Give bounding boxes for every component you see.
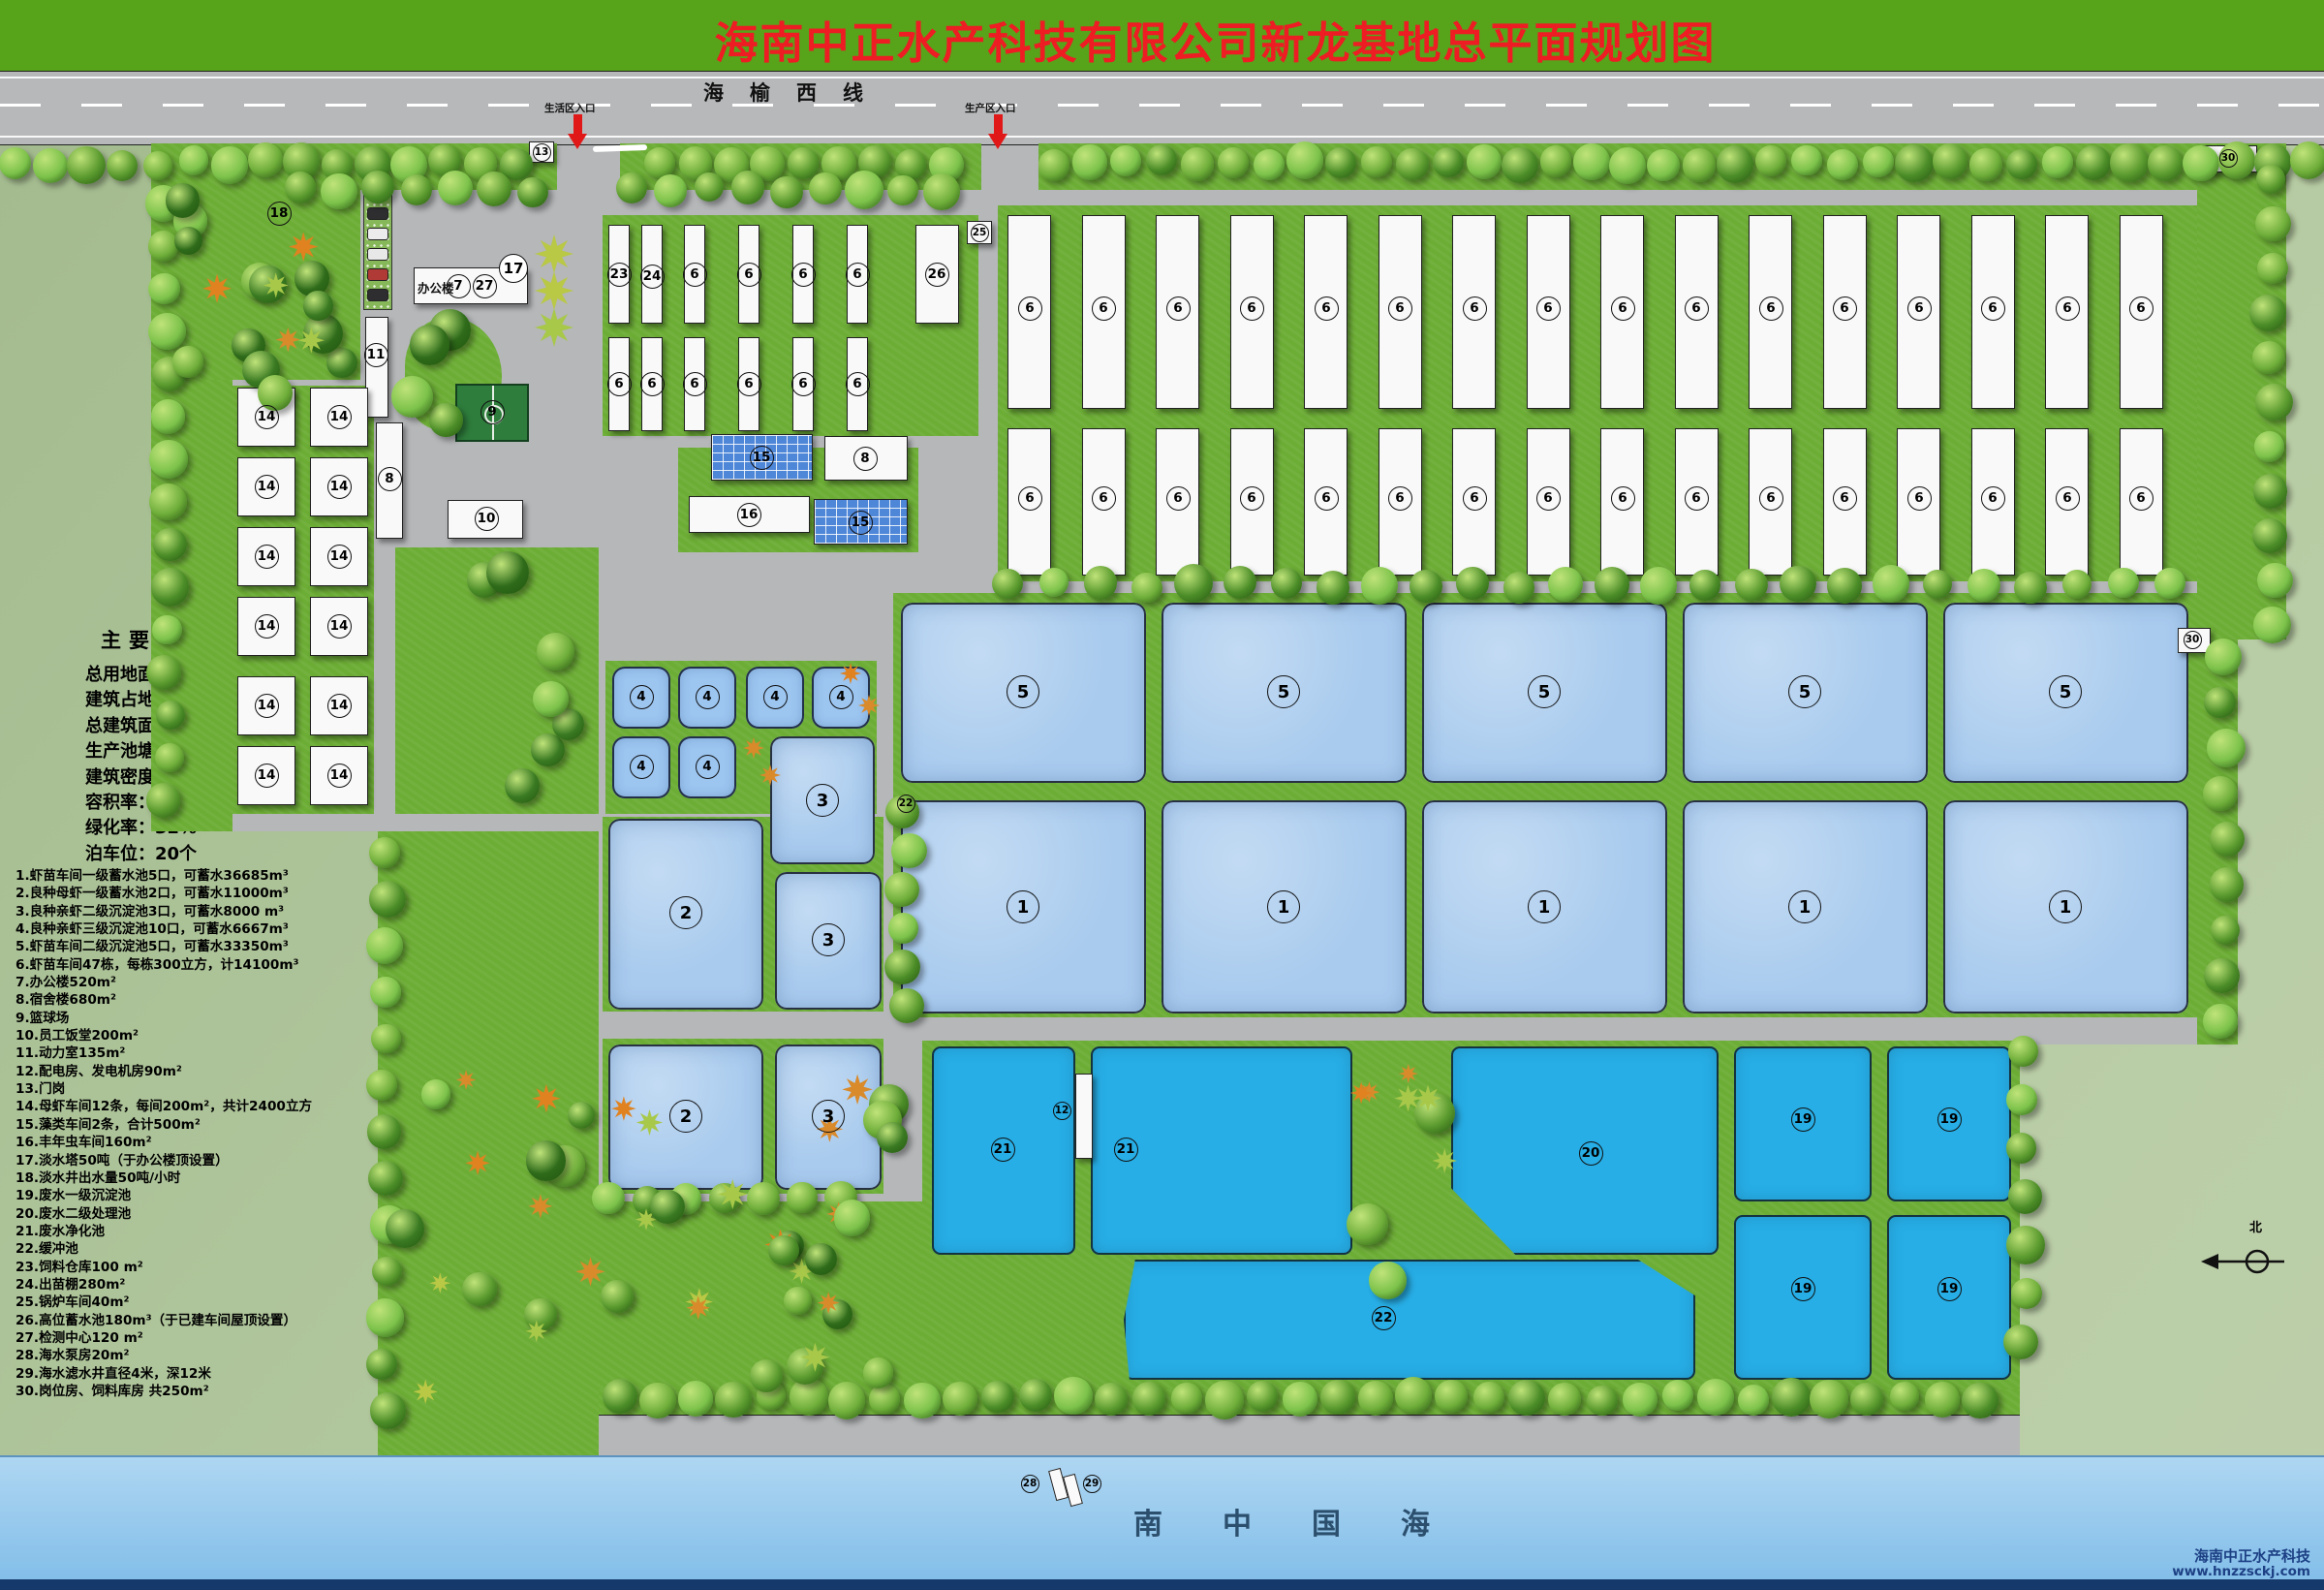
marker-6: 6 bbox=[846, 263, 870, 287]
marker-6: 6 bbox=[1759, 296, 1783, 321]
marker-26: 26 bbox=[925, 263, 949, 287]
tree-icon bbox=[2254, 431, 2284, 461]
tree-icon bbox=[211, 146, 248, 183]
marker-6: 6 bbox=[1611, 296, 1635, 321]
tree-icon bbox=[2008, 1036, 2039, 1067]
tree-icon bbox=[809, 172, 841, 204]
tree-icon bbox=[366, 1349, 397, 1380]
tree-icon bbox=[462, 1272, 496, 1306]
tree-icon bbox=[1595, 567, 1630, 603]
tree-icon bbox=[828, 1382, 866, 1419]
marker-6: 6 bbox=[1463, 486, 1487, 511]
marker-14: 14 bbox=[255, 764, 279, 788]
flower-tree-icon bbox=[528, 1194, 552, 1218]
compass-north-label: 北 bbox=[2249, 1217, 2262, 1235]
tree-icon bbox=[1609, 147, 1646, 184]
tree-icon bbox=[770, 176, 802, 208]
marker-14: 14 bbox=[327, 694, 352, 718]
tree-icon bbox=[1181, 147, 1214, 180]
tree-icon bbox=[526, 1140, 567, 1181]
marker-22: 22 bbox=[897, 795, 915, 813]
tree-icon bbox=[366, 1070, 397, 1101]
tree-icon bbox=[2148, 145, 2184, 181]
tree-icon bbox=[149, 440, 188, 479]
flower-tree-icon bbox=[535, 308, 573, 347]
tree-icon bbox=[834, 1200, 871, 1236]
tree-icon bbox=[369, 837, 400, 868]
marker-28: 28 bbox=[1021, 1475, 1039, 1493]
tree-icon bbox=[1968, 569, 2000, 602]
marker-2: 2 bbox=[669, 1100, 702, 1133]
flower-tree-icon bbox=[275, 327, 300, 353]
tree-icon bbox=[923, 173, 960, 210]
tree-icon bbox=[2042, 146, 2074, 178]
flower-tree-icon bbox=[525, 1320, 547, 1342]
tree-icon bbox=[370, 977, 400, 1007]
tree-icon bbox=[151, 399, 185, 433]
tree-icon bbox=[1174, 564, 1213, 603]
marker-6: 6 bbox=[607, 372, 632, 396]
flower-tree-icon bbox=[1414, 1085, 1441, 1112]
tree-icon bbox=[1573, 143, 1610, 180]
marker-14: 14 bbox=[327, 405, 352, 429]
tree-icon bbox=[904, 1383, 940, 1419]
building-b11 bbox=[365, 317, 388, 418]
road-edge-line bbox=[0, 136, 2324, 138]
tree-icon bbox=[603, 1379, 637, 1414]
flower-tree-icon bbox=[1350, 1082, 1373, 1105]
marker-16: 16 bbox=[737, 503, 761, 527]
marker-6: 6 bbox=[640, 372, 665, 396]
entrance-label-production: 生产区入口 bbox=[965, 101, 1016, 115]
tree-icon bbox=[2108, 568, 2138, 598]
tree-icon bbox=[1325, 147, 1356, 178]
tree-icon bbox=[863, 1357, 893, 1387]
marker-6: 6 bbox=[683, 263, 707, 287]
bottom-bar bbox=[0, 1579, 2324, 1590]
tree-icon bbox=[889, 988, 924, 1023]
marker-6: 6 bbox=[683, 372, 707, 396]
tree-icon bbox=[2210, 822, 2245, 857]
flower-tree-icon bbox=[263, 272, 289, 297]
tree-icon bbox=[0, 147, 31, 179]
marker-6: 6 bbox=[791, 372, 816, 396]
tree-icon bbox=[152, 615, 181, 644]
marker-14: 14 bbox=[255, 405, 279, 429]
tree-icon bbox=[2006, 1084, 2037, 1115]
marker-14: 14 bbox=[327, 764, 352, 788]
road-center-dashes bbox=[0, 104, 2324, 107]
parked-car bbox=[367, 207, 388, 220]
flower-tree-icon bbox=[414, 1380, 438, 1404]
tree-icon bbox=[151, 568, 189, 606]
marker-6: 6 bbox=[1240, 486, 1264, 511]
tree-icon bbox=[1320, 1380, 1355, 1415]
flower-tree-icon bbox=[575, 1257, 604, 1286]
tree-icon bbox=[149, 483, 187, 521]
tree-icon bbox=[391, 376, 433, 418]
tree-icon bbox=[1969, 148, 2001, 180]
tree-icon bbox=[601, 1280, 634, 1313]
marker-13: 13 bbox=[533, 143, 551, 162]
marker-6: 6 bbox=[1315, 296, 1339, 321]
tree-icon bbox=[1863, 146, 1894, 177]
marker-8: 8 bbox=[378, 467, 402, 491]
flower-tree-icon bbox=[430, 1272, 451, 1294]
tree-icon bbox=[1689, 570, 1720, 600]
tree-icon bbox=[1286, 141, 1324, 179]
flower-tree-icon bbox=[611, 1096, 635, 1120]
marker-6: 6 bbox=[1315, 486, 1339, 511]
tree-icon bbox=[2207, 729, 2246, 767]
parked-car bbox=[367, 289, 388, 301]
parked-car bbox=[367, 248, 388, 261]
tree-icon bbox=[1735, 569, 1767, 601]
marker-21: 21 bbox=[991, 1138, 1015, 1162]
tree-icon bbox=[2203, 1004, 2238, 1039]
tree-icon bbox=[517, 177, 547, 207]
tree-icon bbox=[1548, 567, 1583, 602]
sea-label: 南中国海 bbox=[1133, 1500, 1490, 1543]
tree-icon bbox=[2008, 1179, 2042, 1213]
marker-23: 23 bbox=[607, 263, 632, 287]
tree-icon bbox=[715, 1382, 751, 1418]
marker-14: 14 bbox=[255, 545, 279, 569]
tree-icon bbox=[2255, 384, 2293, 421]
tree-icon bbox=[1925, 1382, 1961, 1418]
marker-21: 21 bbox=[1114, 1138, 1138, 1162]
compass-icon bbox=[2197, 1232, 2290, 1291]
tree-icon bbox=[174, 227, 202, 255]
tree-icon bbox=[1502, 147, 1537, 183]
marker-5: 5 bbox=[1528, 675, 1561, 708]
flower-tree-icon bbox=[532, 1084, 561, 1113]
marker-1: 1 bbox=[1528, 890, 1561, 923]
tree-icon bbox=[366, 927, 403, 964]
watermark: 海南中正水产科技 www.hnzzsckj.com bbox=[2172, 1548, 2310, 1579]
tree-icon bbox=[1717, 145, 1754, 183]
tree-icon bbox=[1962, 1383, 1999, 1419]
plan-title: 海南中正水产科技有限公司新龙基地总平面规划图 bbox=[53, 8, 2324, 71]
tree-icon bbox=[1827, 568, 1862, 603]
tree-icon bbox=[2257, 253, 2288, 284]
tree-icon bbox=[401, 174, 432, 205]
marker-6: 6 bbox=[1092, 486, 1116, 511]
marker-27: 27 bbox=[473, 274, 497, 298]
marker-20: 20 bbox=[1579, 1141, 1603, 1166]
marker-14: 14 bbox=[255, 614, 279, 639]
marker-6: 6 bbox=[1759, 486, 1783, 511]
tree-icon bbox=[156, 701, 185, 730]
tree-icon bbox=[1084, 566, 1118, 600]
watermark-url: www.hnzzsckj.com bbox=[2172, 1564, 2310, 1579]
marker-19: 19 bbox=[1937, 1277, 1962, 1301]
tree-icon bbox=[639, 1383, 675, 1419]
tree-icon bbox=[1791, 145, 1821, 175]
flower-tree-icon bbox=[800, 1343, 829, 1372]
road-edge-line bbox=[0, 77, 2324, 78]
flower-tree-icon bbox=[298, 327, 325, 354]
marker-5: 5 bbox=[1007, 675, 1039, 708]
tree-icon bbox=[2006, 1226, 2044, 1263]
tree-icon bbox=[1473, 1382, 1504, 1413]
tree-icon bbox=[877, 1122, 908, 1153]
site-plan-canvas: 海南中正水产科技有限公司新龙基地总平面规划图 海榆西线 生活区入口 生产区入口 … bbox=[0, 0, 2324, 1590]
building-b12 bbox=[1075, 1074, 1093, 1159]
marker-6: 6 bbox=[1611, 486, 1635, 511]
entrance-label-life: 生活区入口 bbox=[544, 101, 596, 115]
highway-name: 海榆西线 bbox=[703, 78, 889, 107]
marker-6: 6 bbox=[1685, 486, 1709, 511]
coast-road bbox=[599, 1415, 2020, 1457]
marker-14: 14 bbox=[327, 475, 352, 499]
flower-tree-icon bbox=[842, 1075, 873, 1106]
flower-tree-icon bbox=[636, 1109, 663, 1136]
marker-6: 6 bbox=[2129, 296, 2154, 321]
tree-icon bbox=[1435, 1380, 1468, 1413]
marker-14: 14 bbox=[327, 545, 352, 569]
tree-icon bbox=[650, 1190, 684, 1224]
marker-30: 30 bbox=[2184, 631, 2202, 649]
tree-icon bbox=[2205, 639, 2242, 675]
marker-25: 25 bbox=[971, 224, 989, 242]
flower-tree-icon bbox=[456, 1070, 477, 1090]
marker-6: 6 bbox=[1018, 296, 1042, 321]
tree-icon bbox=[2253, 607, 2290, 643]
tree-icon bbox=[166, 183, 200, 217]
tree-icon bbox=[1433, 147, 1463, 177]
tree-icon bbox=[869, 1384, 900, 1415]
tree-icon bbox=[537, 633, 574, 670]
tree-icon bbox=[477, 171, 512, 207]
marker-6: 6 bbox=[737, 372, 761, 396]
marker-1: 1 bbox=[2049, 890, 2082, 923]
flower-tree-icon bbox=[535, 271, 573, 310]
tree-icon bbox=[1890, 1382, 1919, 1411]
marker-6: 6 bbox=[1981, 486, 2005, 511]
tree-icon bbox=[1772, 1378, 1810, 1416]
marker-22: 22 bbox=[1372, 1306, 1396, 1330]
marker-8: 8 bbox=[853, 447, 878, 471]
tree-icon bbox=[438, 171, 473, 205]
marker-6: 6 bbox=[1092, 296, 1116, 321]
tree-icon bbox=[172, 346, 203, 377]
marker-6: 6 bbox=[1018, 486, 1042, 511]
pond-wastewater bbox=[1124, 1260, 1695, 1380]
tree-icon bbox=[616, 172, 648, 204]
tree-icon bbox=[370, 1392, 406, 1428]
tree-icon bbox=[303, 314, 343, 354]
marker-6: 6 bbox=[1166, 296, 1191, 321]
marker-24: 24 bbox=[640, 265, 665, 289]
marker-5: 5 bbox=[1267, 675, 1300, 708]
tree-icon bbox=[1640, 567, 1678, 605]
marker-11: 11 bbox=[364, 343, 388, 367]
tree-icon bbox=[1395, 1377, 1431, 1413]
tree-icon bbox=[386, 1209, 424, 1248]
tree-icon bbox=[888, 913, 918, 943]
tree-icon bbox=[369, 881, 406, 918]
marker-30: 30 bbox=[2219, 149, 2238, 168]
tree-icon bbox=[1396, 148, 1429, 181]
tree-icon bbox=[1873, 565, 1910, 603]
marker-2: 2 bbox=[669, 896, 702, 929]
marker-6: 6 bbox=[791, 263, 816, 287]
tree-icon bbox=[1587, 1386, 1617, 1416]
tree-icon bbox=[1508, 1380, 1544, 1416]
marker-4: 4 bbox=[763, 685, 788, 709]
marker-12: 12 bbox=[1053, 1102, 1071, 1120]
marker-6: 6 bbox=[1536, 296, 1561, 321]
tree-icon bbox=[1247, 1381, 1278, 1412]
tree-icon bbox=[533, 681, 569, 717]
marker-4: 4 bbox=[630, 685, 654, 709]
tree-icon bbox=[1623, 1383, 1658, 1418]
flower-tree-icon bbox=[1432, 1148, 1457, 1173]
marker-14: 14 bbox=[327, 614, 352, 639]
marker-1: 1 bbox=[1267, 890, 1300, 923]
marker-17: 17 bbox=[499, 254, 528, 283]
marker-6: 6 bbox=[1388, 486, 1412, 511]
tree-icon bbox=[148, 313, 186, 351]
tree-icon bbox=[153, 528, 187, 562]
marker-6: 6 bbox=[2129, 486, 2154, 511]
tree-icon bbox=[891, 833, 927, 869]
tree-icon bbox=[2154, 568, 2185, 599]
tree-icon bbox=[887, 175, 918, 206]
tree-icon bbox=[2110, 143, 2149, 182]
marker-4: 4 bbox=[829, 685, 853, 709]
tree-icon bbox=[321, 173, 357, 210]
flower-tree-icon bbox=[289, 232, 318, 261]
marker-29: 29 bbox=[1083, 1475, 1101, 1493]
tree-icon bbox=[179, 145, 209, 175]
tree-icon bbox=[33, 148, 69, 184]
tree-icon bbox=[1072, 144, 1107, 179]
marker-6: 6 bbox=[1833, 486, 1857, 511]
tree-icon bbox=[1038, 149, 1069, 180]
tree-icon bbox=[1780, 566, 1816, 603]
marker-14: 14 bbox=[255, 475, 279, 499]
tree-icon bbox=[1347, 1203, 1388, 1245]
tree-icon bbox=[303, 291, 332, 320]
tree-icon bbox=[155, 743, 184, 772]
highway-road bbox=[0, 71, 2324, 145]
marker-5: 5 bbox=[2049, 675, 2082, 708]
tree-icon bbox=[1503, 572, 1535, 604]
marker-6: 6 bbox=[1685, 296, 1709, 321]
marker-19: 19 bbox=[1937, 1107, 1962, 1132]
flower-tree-icon bbox=[759, 764, 781, 786]
tree-icon bbox=[1131, 573, 1162, 604]
tree-icon bbox=[361, 171, 394, 203]
marker-3: 3 bbox=[812, 1100, 845, 1133]
tree-icon bbox=[146, 655, 181, 690]
tree-icon bbox=[2006, 149, 2036, 179]
tree-icon bbox=[1271, 568, 1302, 599]
tree-icon bbox=[2290, 141, 2324, 179]
marker-9: 9 bbox=[480, 400, 505, 424]
tree-icon bbox=[1827, 149, 1858, 180]
tree-icon bbox=[429, 403, 462, 436]
tree-icon bbox=[1850, 1383, 1883, 1416]
tree-icon bbox=[981, 1381, 1014, 1414]
tree-icon bbox=[1456, 567, 1489, 600]
tree-icon bbox=[1361, 146, 1392, 177]
tree-icon bbox=[67, 146, 105, 184]
flower-tree-icon bbox=[840, 663, 861, 684]
tree-icon bbox=[787, 1182, 817, 1212]
tree-icon bbox=[2011, 1278, 2042, 1309]
marker-15: 15 bbox=[750, 446, 774, 470]
marker-6: 6 bbox=[1463, 296, 1487, 321]
tree-icon bbox=[1810, 1380, 1847, 1418]
list-line: 泊车位：20个 bbox=[85, 842, 303, 867]
watermark-company: 海南中正水产科技 bbox=[2172, 1548, 2310, 1564]
marker-19: 19 bbox=[1791, 1277, 1815, 1301]
tree-icon bbox=[1683, 148, 1717, 182]
tree-icon bbox=[148, 231, 178, 261]
tree-icon bbox=[1933, 143, 1968, 179]
marker-6: 6 bbox=[1388, 296, 1412, 321]
tree-icon bbox=[884, 950, 919, 984]
tree-icon bbox=[1132, 1382, 1165, 1415]
tree-icon bbox=[1697, 1379, 1734, 1416]
tree-icon bbox=[146, 783, 180, 817]
tree-icon bbox=[1369, 1262, 1406, 1298]
tree-icon bbox=[486, 551, 529, 594]
marker-1: 1 bbox=[1788, 890, 1821, 923]
marker-5: 5 bbox=[1788, 675, 1821, 708]
flower-tree-icon bbox=[686, 1295, 710, 1320]
tree-icon bbox=[2014, 572, 2046, 604]
flower-tree-icon bbox=[535, 234, 573, 273]
tree-icon bbox=[592, 1182, 625, 1215]
tree-icon bbox=[2183, 145, 2219, 182]
marker-6: 6 bbox=[1240, 296, 1264, 321]
tree-icon bbox=[366, 1298, 404, 1336]
tree-icon bbox=[1647, 149, 1680, 182]
tree-icon bbox=[421, 1079, 451, 1109]
marker-6: 6 bbox=[1833, 296, 1857, 321]
tree-icon bbox=[410, 325, 450, 365]
marker-1: 1 bbox=[1007, 890, 1039, 923]
tree-icon bbox=[943, 1382, 976, 1416]
tree-icon bbox=[1410, 570, 1442, 603]
tree-icon bbox=[285, 171, 316, 203]
office-building-label: 办公楼 bbox=[418, 278, 476, 296]
tree-icon bbox=[368, 1161, 403, 1196]
tree-icon bbox=[1358, 1381, 1393, 1416]
tree-icon bbox=[2257, 563, 2292, 598]
tree-icon bbox=[1361, 567, 1398, 604]
flower-tree-icon bbox=[818, 1292, 840, 1314]
tree-icon bbox=[367, 1114, 401, 1148]
tree-icon bbox=[747, 1182, 780, 1215]
tree-icon bbox=[326, 348, 356, 378]
tree-icon bbox=[1205, 1381, 1243, 1419]
tree-icon bbox=[2003, 1325, 2038, 1359]
tree-icon bbox=[1895, 144, 1933, 182]
tree-icon bbox=[1054, 1377, 1092, 1415]
tree-icon bbox=[2253, 474, 2287, 508]
marker-6: 6 bbox=[1536, 486, 1561, 511]
marker-18: 18 bbox=[267, 202, 292, 226]
marker-3: 3 bbox=[806, 784, 839, 817]
marker-6: 6 bbox=[1166, 486, 1191, 511]
parked-car bbox=[367, 228, 388, 240]
marker-14: 14 bbox=[255, 694, 279, 718]
